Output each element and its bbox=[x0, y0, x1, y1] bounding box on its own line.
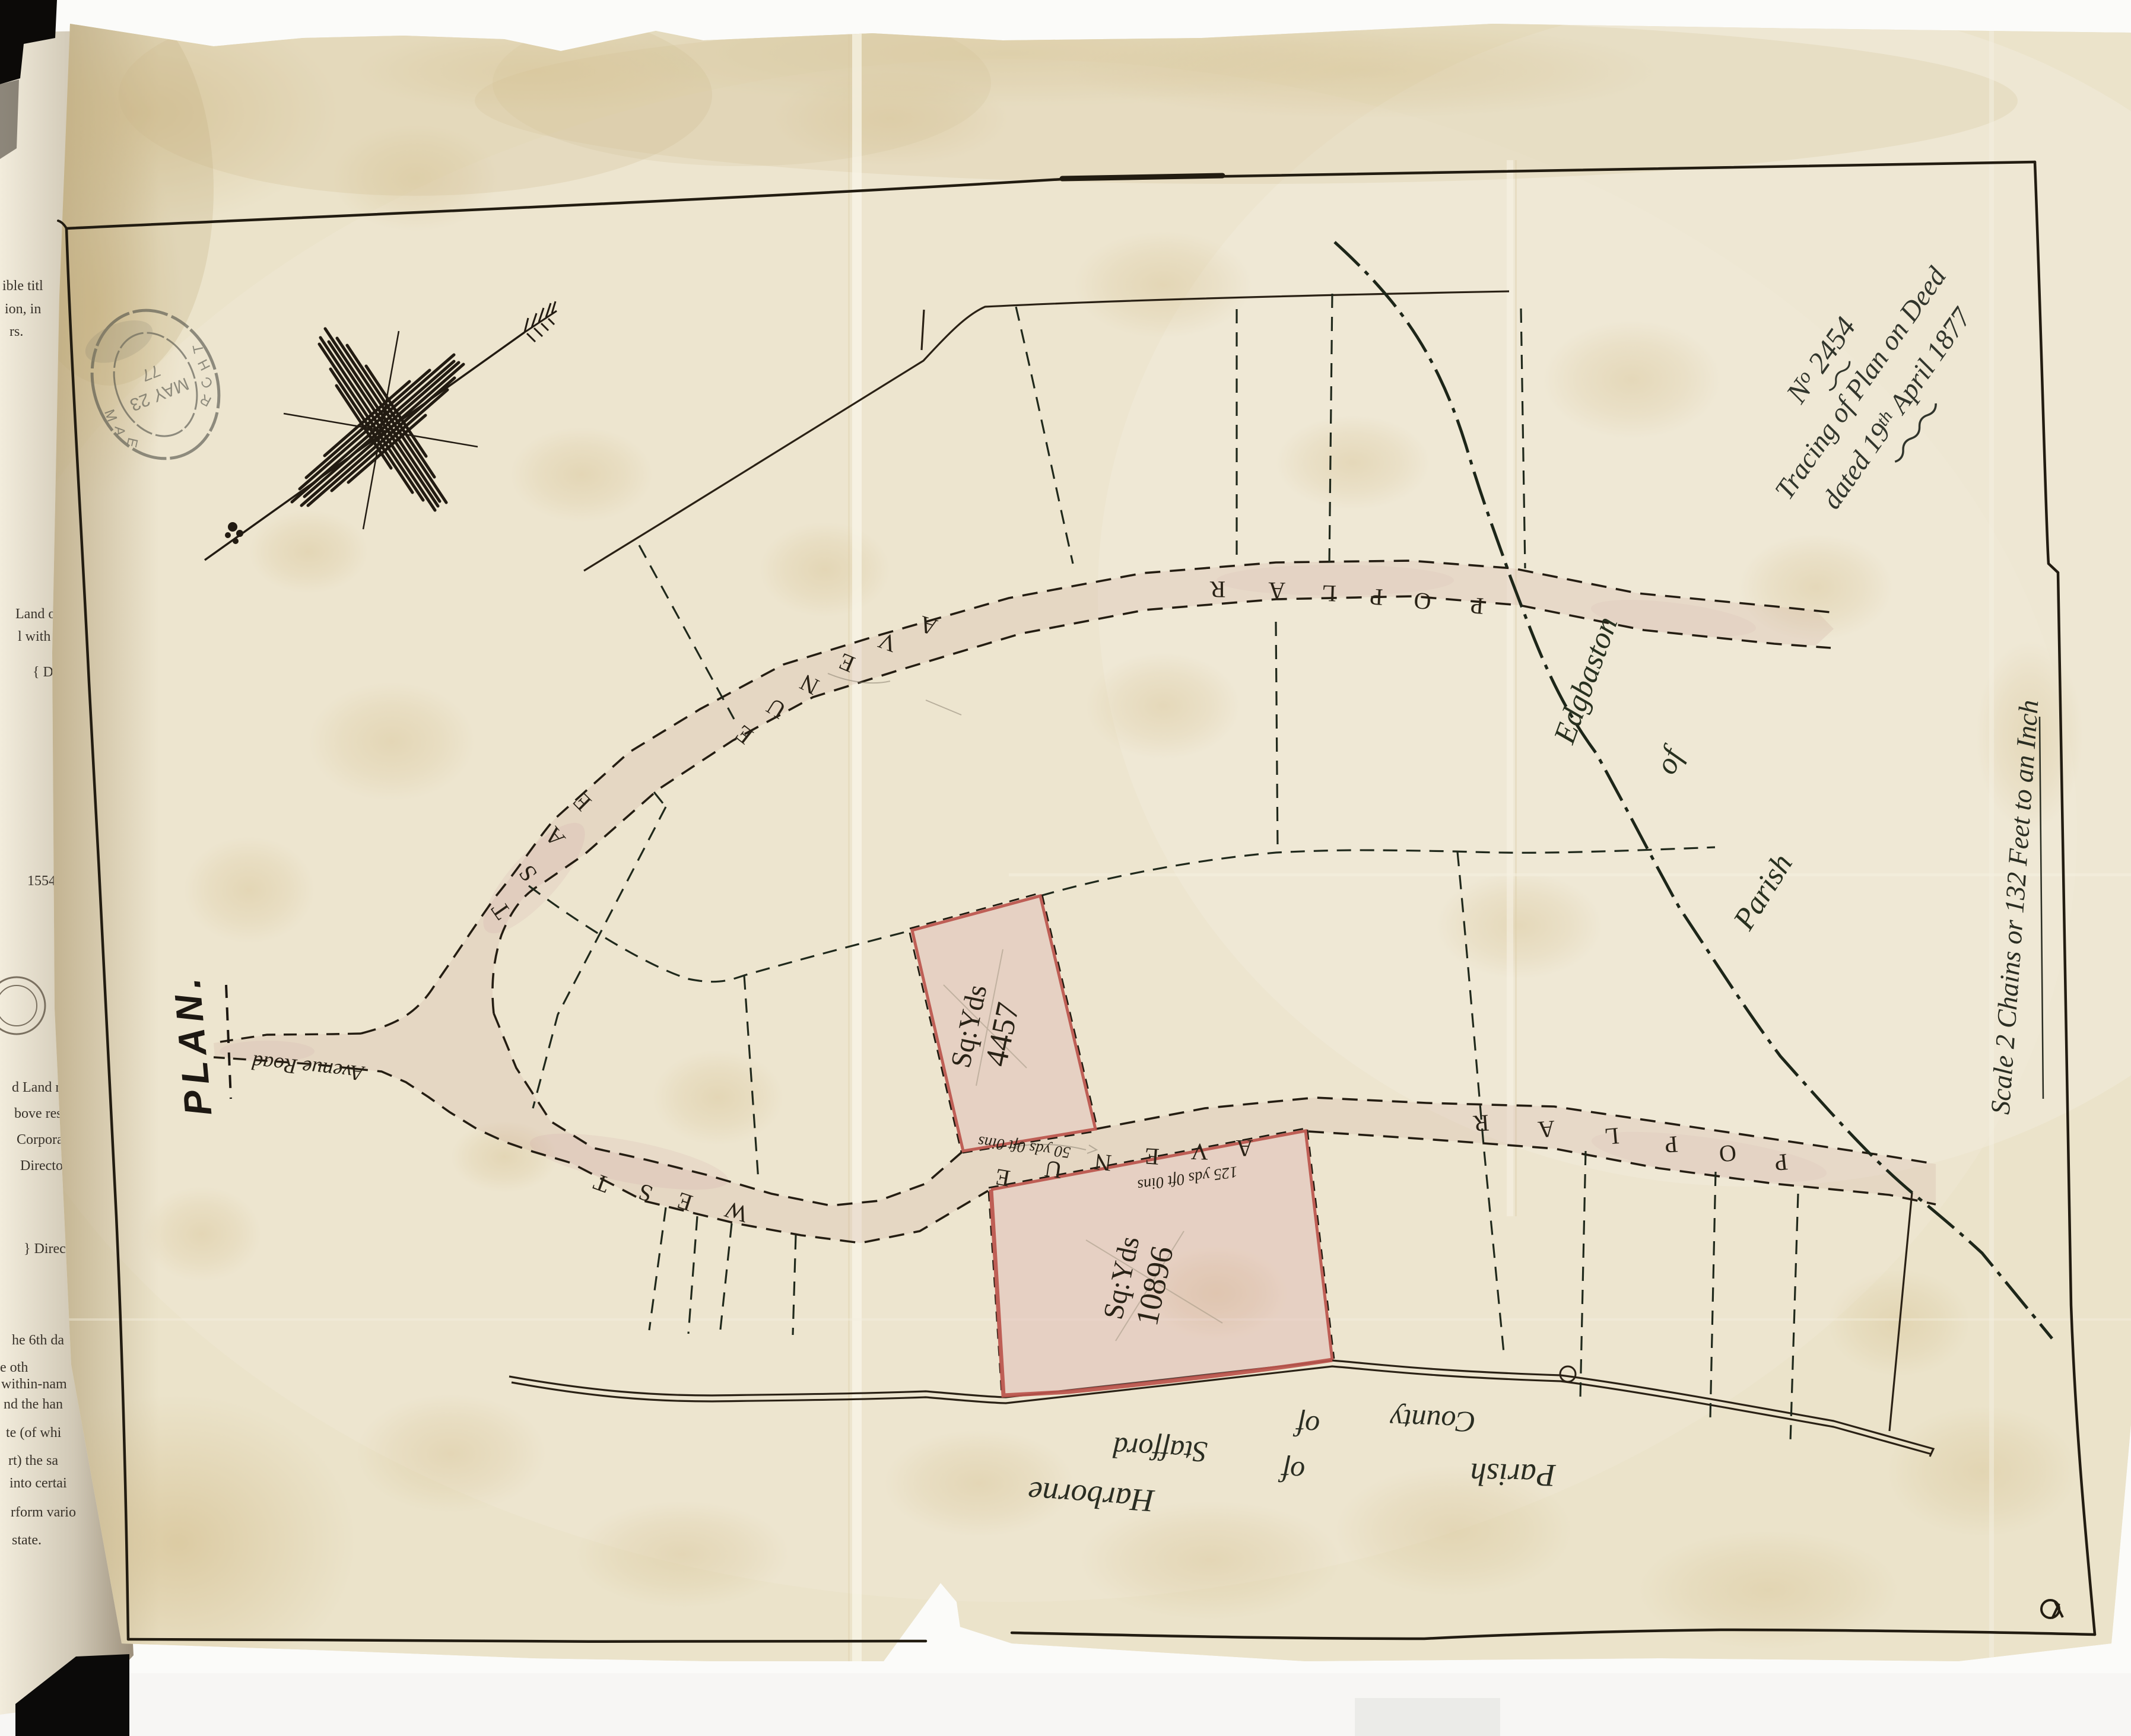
svg-text:P: P bbox=[1369, 583, 1384, 611]
svg-text:N: N bbox=[1093, 1149, 1113, 1177]
svg-text:} Direct: } Direct bbox=[24, 1241, 70, 1257]
svg-text:te (of whi: te (of whi bbox=[6, 1425, 62, 1441]
svg-text:L: L bbox=[1603, 1123, 1620, 1150]
svg-text:Land o: Land o bbox=[15, 606, 55, 622]
svg-text:A: A bbox=[1236, 1135, 1253, 1162]
svg-text:P: P bbox=[1663, 1131, 1679, 1159]
svg-text:ion, in: ion, in bbox=[5, 301, 41, 317]
svg-text:ible titl: ible titl bbox=[2, 278, 43, 294]
svg-text:e oth: e oth bbox=[0, 1360, 28, 1375]
svg-text:R: R bbox=[1209, 576, 1225, 603]
svg-text:A: A bbox=[1537, 1115, 1556, 1143]
svg-text:Stafford: Stafford bbox=[1111, 1431, 1208, 1469]
svg-text:rs.: rs. bbox=[9, 324, 23, 339]
svg-text:bove resi: bove resi bbox=[14, 1106, 66, 1121]
svg-text:l with: l with bbox=[18, 629, 50, 644]
svg-text:A: A bbox=[112, 426, 128, 436]
svg-text:P: P bbox=[1773, 1149, 1789, 1177]
svg-text:L: L bbox=[1322, 580, 1337, 608]
svg-text:P: P bbox=[1469, 592, 1484, 619]
svg-text:Parish: Parish bbox=[1470, 1457, 1557, 1494]
svg-text:E: E bbox=[1144, 1143, 1160, 1171]
svg-text:into certai: into certai bbox=[9, 1476, 67, 1491]
svg-text:rt) the sa: rt) the sa bbox=[8, 1453, 58, 1468]
svg-text:within-nam: within-nam bbox=[1, 1376, 67, 1392]
svg-text:O: O bbox=[1718, 1140, 1738, 1168]
svg-text:R: R bbox=[1472, 1109, 1490, 1137]
svg-text:state.: state. bbox=[12, 1532, 42, 1548]
svg-text:County: County bbox=[1389, 1403, 1476, 1439]
svg-text:he 6th da: he 6th da bbox=[12, 1333, 64, 1348]
svg-text:rform vario: rform vario bbox=[11, 1505, 76, 1520]
svg-text:nd the han: nd the han bbox=[4, 1397, 63, 1412]
svg-text:A: A bbox=[1268, 577, 1286, 604]
svg-text:V: V bbox=[1190, 1138, 1209, 1165]
svg-text:O: O bbox=[1413, 587, 1432, 615]
